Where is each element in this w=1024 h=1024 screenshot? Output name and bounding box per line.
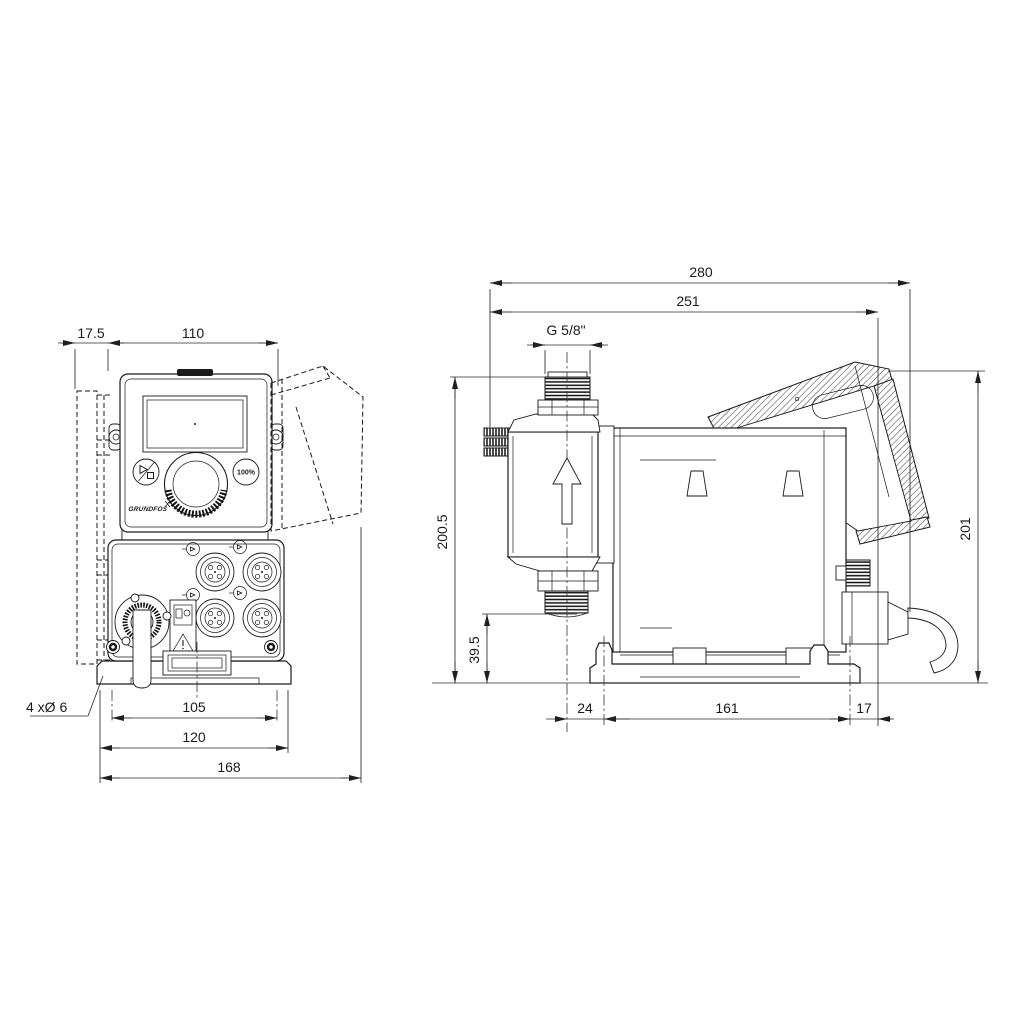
m12-connector [196, 553, 234, 591]
dimensional-drawing-page: 100% GRUNDFOS [0, 0, 1024, 1024]
mounting-hook [783, 471, 803, 496]
discharge-thread [545, 377, 590, 400]
dim-overall-depth: 280 [689, 264, 713, 280]
front-view: 100% GRUNDFOS [26, 325, 363, 783]
wall-bracket-hidden-outline [77, 391, 110, 664]
warning-label-plate [170, 600, 196, 658]
dim-overall-width: 168 [217, 759, 241, 775]
housing-screw [265, 641, 278, 654]
panel-top-tab [177, 369, 213, 376]
dim-base-width: 120 [182, 729, 206, 745]
brand-logo-text: GRUNDFOS [128, 506, 168, 513]
power-cable [133, 610, 151, 688]
brand-logo: GRUNDFOS [128, 506, 168, 513]
dim-height-to-connector: 200.5 [434, 514, 450, 549]
m12-connector [243, 599, 281, 637]
m12-connector [196, 599, 234, 637]
dim-depth-less-cable: 251 [676, 293, 700, 309]
control-panel: 100% GRUNDFOS [109, 369, 283, 532]
dim-head-overhang: 24 [577, 700, 593, 716]
dim-base-depth: 161 [715, 700, 739, 716]
mains-cable-assembly [836, 560, 958, 673]
dim-rear-overhang: 17 [856, 700, 872, 716]
start-stop-button[interactable] [133, 459, 159, 485]
label-thread: G 5/8" [546, 322, 585, 338]
housing-screw [107, 641, 120, 654]
dim-width: 110 [182, 325, 205, 341]
pump-body [613, 428, 846, 652]
mounting-hook [687, 471, 707, 496]
priming-knob[interactable] [484, 428, 510, 456]
display [143, 396, 247, 452]
full-capacity-button[interactable]: 100% [233, 459, 259, 485]
dim-overall-height: 201 [957, 517, 973, 541]
discharge-union-nut [538, 400, 598, 415]
full-capacity-button-label: 100% [237, 470, 256, 477]
suction-thread [545, 591, 588, 613]
dim-valve-clearance: 39.5 [466, 636, 482, 663]
pump-dimensional-drawing: 100% GRUNDFOS [0, 0, 1024, 1024]
mains-cable [908, 608, 958, 673]
side-view: 280 251 G 5/8" 200.5 39.5 [432, 264, 988, 732]
m12-connector [243, 553, 281, 591]
dim-hole-spacing: 105 [182, 699, 206, 715]
tilted-control-unit-hidden-outline [271, 366, 363, 531]
rail-clamp [163, 642, 231, 700]
gland-thread [846, 560, 870, 586]
label-mounting-holes: 4 xØ 6 [26, 699, 67, 715]
dim-wall-offset: 17.5 [77, 325, 104, 341]
